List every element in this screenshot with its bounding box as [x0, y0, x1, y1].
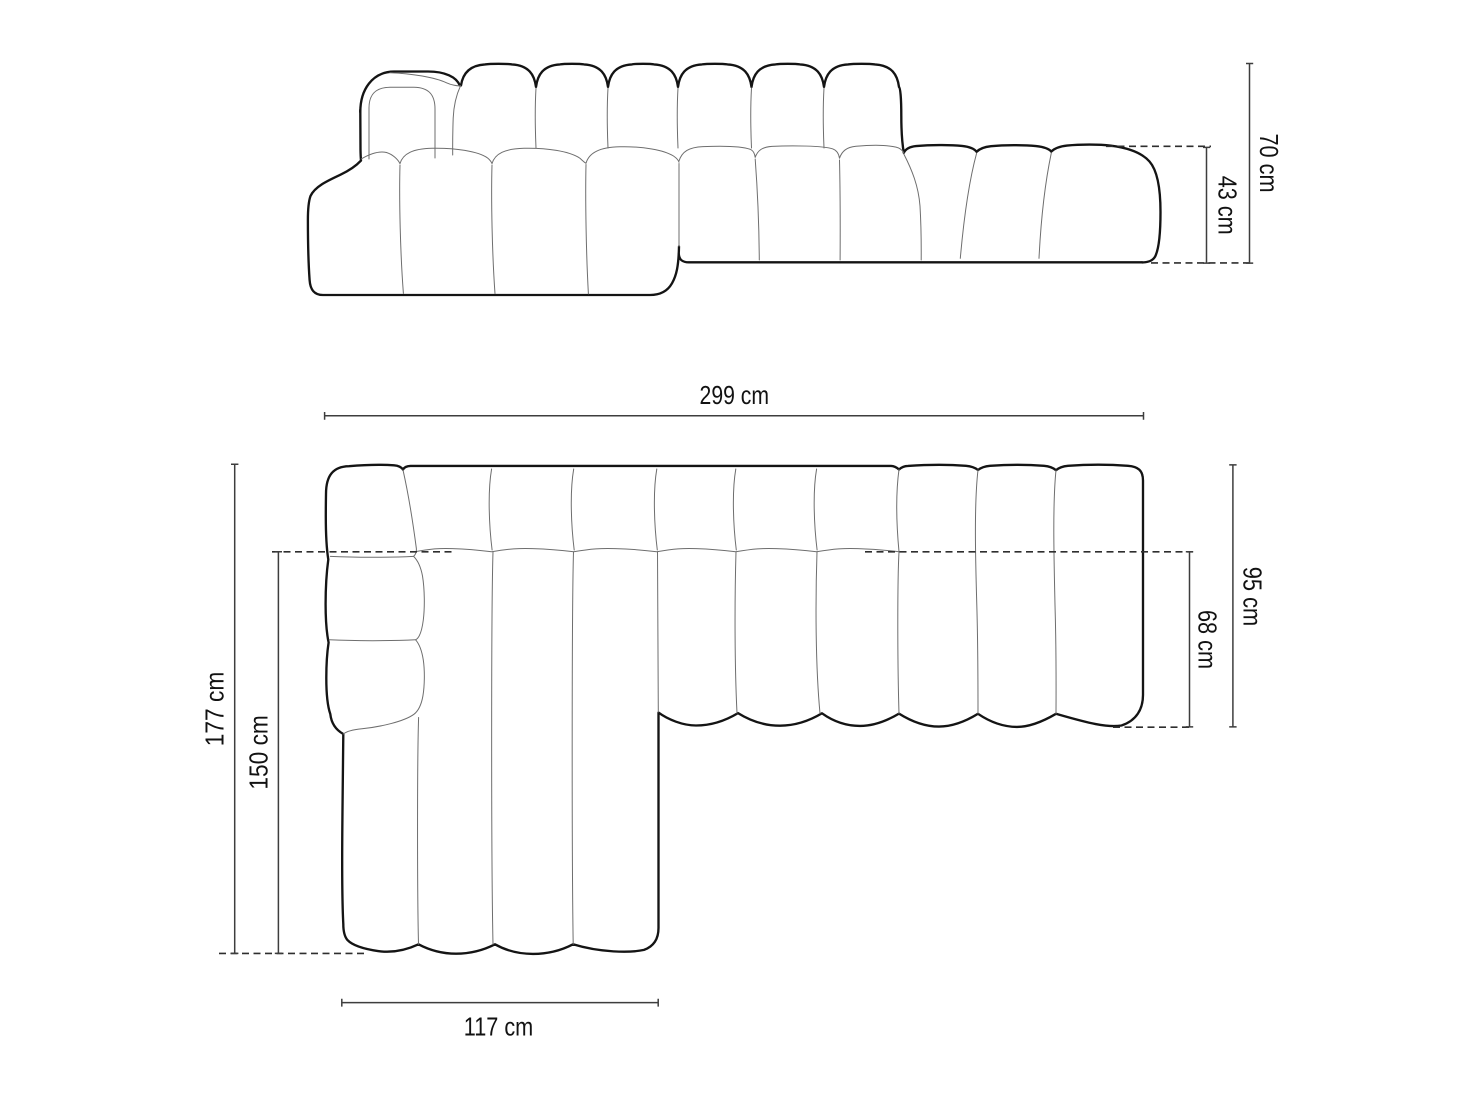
svg-text:299 cm: 299 cm	[700, 380, 770, 410]
svg-text:68 cm: 68 cm	[1192, 610, 1222, 669]
svg-text:177 cm: 177 cm	[200, 672, 230, 747]
svg-text:43 cm: 43 cm	[1213, 176, 1243, 235]
svg-text:70 cm: 70 cm	[1254, 134, 1284, 193]
svg-text:117 cm: 117 cm	[464, 1012, 534, 1042]
svg-text:150 cm: 150 cm	[244, 715, 274, 790]
svg-text:95 cm: 95 cm	[1237, 567, 1267, 627]
